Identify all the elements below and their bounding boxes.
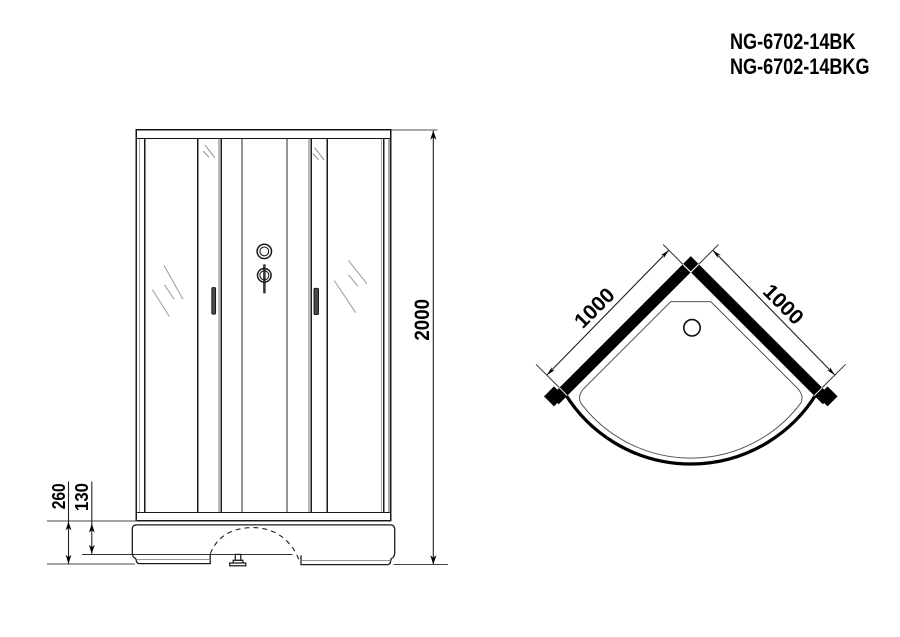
svg-text:130: 130 bbox=[72, 483, 92, 511]
svg-text:260: 260 bbox=[49, 483, 69, 509]
svg-text:NG-6702-14BK: NG-6702-14BK bbox=[730, 29, 856, 54]
svg-text:NG-6702-14BKG: NG-6702-14BKG bbox=[730, 54, 870, 79]
svg-text:2000: 2000 bbox=[411, 299, 434, 341]
